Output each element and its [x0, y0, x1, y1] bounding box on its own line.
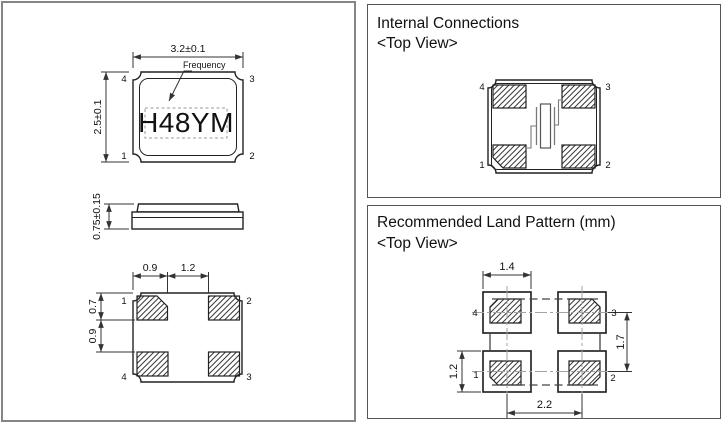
dim-bottom-vertical: 0.7 0.9 — [87, 293, 135, 352]
crystal-element — [541, 104, 551, 148]
dim-row-pitch: 1.7 — [608, 313, 632, 372]
frequency-label: Frequency — [183, 60, 226, 70]
row-pitch-label: 1.7 — [615, 334, 627, 349]
land-pattern-diagram: Recommended Land Pattern (mm) <Top View>… — [377, 214, 632, 418]
pin-label-bottom-br: 3 — [246, 372, 251, 383]
package-bottom-view: 0.9 1.2 0.7 0.9 1 2 4 3 — [87, 262, 252, 383]
pin-label-top-bl: 1 — [121, 151, 126, 162]
internal-connections-title: Internal Connections — [377, 15, 519, 32]
land-width-label: 1.4 — [499, 261, 514, 273]
internal-pad-3 — [562, 85, 595, 108]
pin-label-bottom-tr: 2 — [246, 296, 251, 307]
marking-text: H48YM — [138, 107, 234, 138]
package-width-dim-label: 3.2±0.1 — [171, 43, 206, 55]
internal-connections-subtitle: <Top View> — [377, 35, 458, 52]
pin-label-top-tl: 4 — [121, 74, 126, 85]
bottom-pad-3 — [209, 352, 240, 376]
pin-label-bottom-tl: 1 — [121, 296, 126, 307]
land-pattern-title: Recommended Land Pattern (mm) — [377, 214, 616, 231]
land-device-pad-2 — [569, 361, 600, 385]
pin-label-internal-tr: 3 — [605, 82, 610, 93]
pin-label-top-br: 2 — [249, 151, 254, 162]
bottom-pad-4 — [137, 352, 168, 376]
col-pitch-label: 2.2 — [537, 399, 552, 411]
pin-label-land-bl: 1 — [473, 370, 478, 381]
dim-land-width: 1.4 — [483, 261, 531, 289]
pin-label-top-tr: 3 — [249, 74, 254, 85]
land-height-label: 1.2 — [448, 364, 460, 379]
bottom-pad-height-label: 0.7 — [87, 299, 99, 314]
internal-pad-2 — [562, 145, 595, 168]
bottom-gap-width-label: 1.2 — [181, 262, 196, 274]
package-body-side — [132, 212, 243, 229]
land-pattern-subtitle: <Top View> — [377, 235, 458, 252]
pin-label-bottom-bl: 4 — [121, 372, 126, 383]
package-lid — [137, 204, 239, 212]
package-side-view: 0.75±0.15 — [91, 193, 243, 240]
technical-drawing: 3.2±0.1 2.5±0.1 Frequency H48YM 4 3 1 2 — [0, 0, 726, 428]
pin-label-internal-tl: 4 — [479, 82, 484, 93]
dim-package-thickness: 0.75±0.15 — [91, 193, 134, 240]
bottom-pad-width-label: 0.9 — [143, 262, 158, 274]
bottom-gap-height-label: 0.9 — [87, 329, 99, 344]
dim-col-pitch: 2.2 — [507, 394, 582, 418]
pin-label-land-tr: 3 — [611, 308, 616, 319]
pin-label-land-br: 2 — [610, 373, 615, 384]
dim-package-height: 2.5±0.1 — [92, 72, 129, 162]
pin-label-internal-br: 2 — [605, 160, 610, 171]
pin-label-land-tl: 4 — [472, 308, 477, 319]
land-device-pad-4 — [490, 299, 521, 323]
bottom-pad-2 — [209, 296, 240, 320]
land-device-pad-3 — [569, 299, 600, 323]
pin-label-internal-bl: 1 — [479, 160, 484, 171]
dim-bottom-horizontal: 0.9 1.2 — [133, 262, 209, 293]
package-thickness-dim-label: 0.75±0.15 — [91, 193, 103, 240]
package-height-dim-label: 2.5±0.1 — [92, 99, 104, 134]
internal-pad-4 — [493, 85, 526, 108]
package-top-view: 3.2±0.1 2.5±0.1 Frequency H48YM 4 3 1 2 — [92, 43, 255, 162]
land-device-pad-1 — [490, 361, 521, 385]
internal-connections-diagram: Internal Connections <Top View> 4 3 1 2 — [377, 15, 611, 173]
